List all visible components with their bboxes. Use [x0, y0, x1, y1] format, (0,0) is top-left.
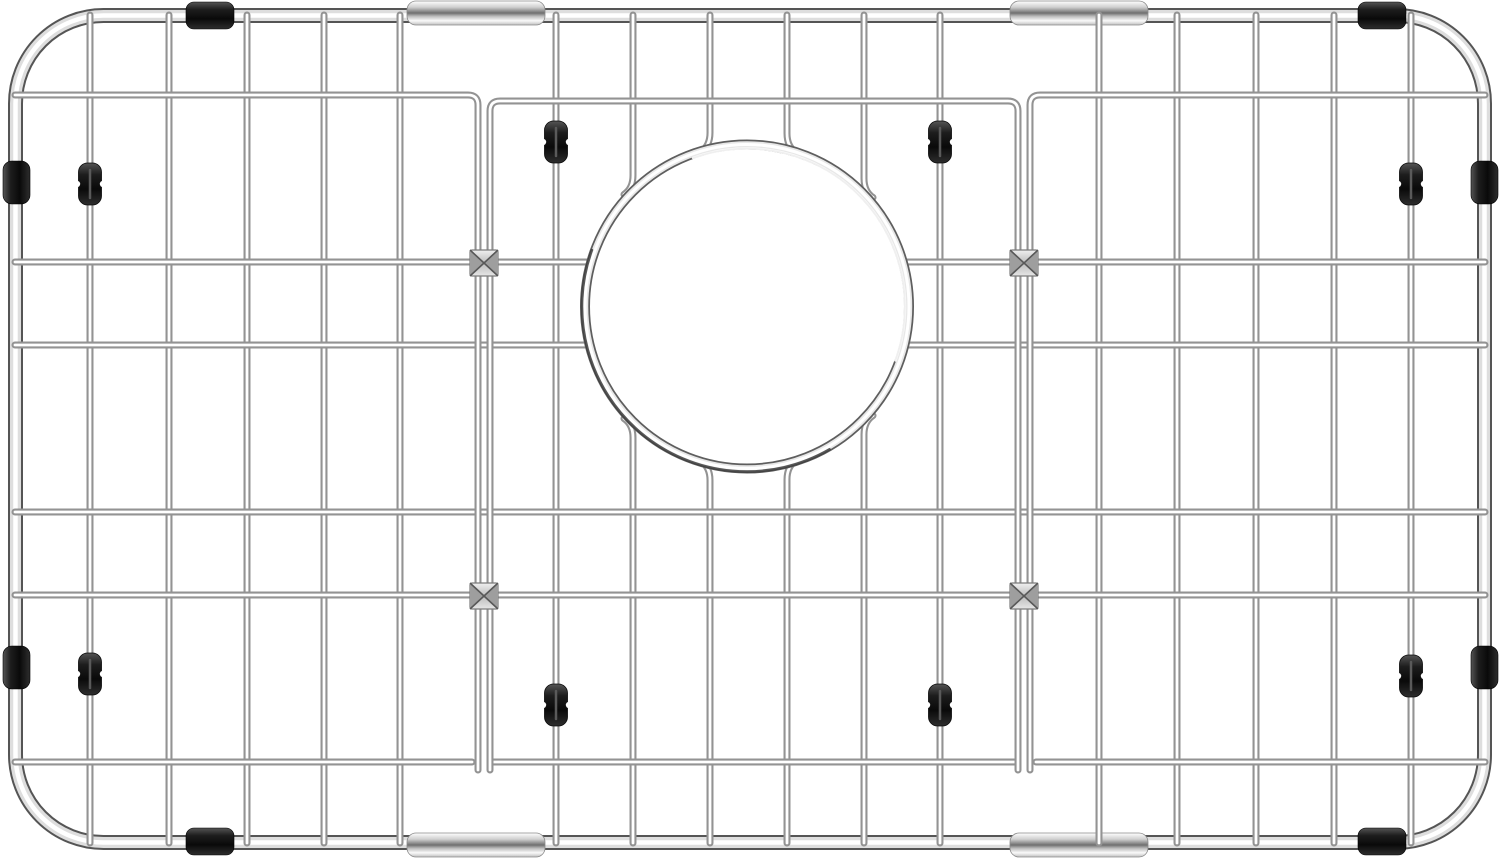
- frame-sleeve: [1010, 1, 1148, 25]
- frame-bumper: [3, 646, 30, 689]
- frame-bumper: [1358, 828, 1406, 855]
- frame-bumper: [1358, 2, 1406, 29]
- wire-clip-notch: [566, 702, 572, 708]
- frame-sleeve: [407, 833, 545, 857]
- wire-clip-notch: [924, 702, 930, 708]
- drain-opening-ring: [582, 145, 909, 472]
- wire-clip-notch: [1395, 181, 1401, 187]
- wire-clip-notch: [540, 702, 546, 708]
- frame-bumper: [186, 2, 234, 29]
- wire-clip-notch: [1421, 181, 1427, 187]
- wire-clip-notch: [1395, 673, 1401, 679]
- wire-clip-notch: [1421, 673, 1427, 679]
- wire-clip-notch: [540, 139, 546, 145]
- frame-bumper: [1471, 646, 1498, 689]
- frame-bumper: [186, 828, 234, 855]
- frame-sleeve: [407, 1, 545, 25]
- sink-grid-product-image: [0, 0, 1500, 858]
- wire-clip-notch: [566, 139, 572, 145]
- wire-clip-notch: [74, 181, 80, 187]
- frame-bumper: [3, 161, 30, 204]
- frame-bumper: [1471, 161, 1498, 204]
- sink-grid-svg: [0, 0, 1500, 858]
- wire-clip-notch: [950, 702, 956, 708]
- wire-clip-notch: [950, 139, 956, 145]
- wire-clip-notch: [924, 139, 930, 145]
- wire-clip-notch: [100, 181, 106, 187]
- wire-clip-notch: [100, 671, 106, 677]
- frame-sleeve: [1010, 833, 1148, 857]
- wire-clip-notch: [74, 671, 80, 677]
